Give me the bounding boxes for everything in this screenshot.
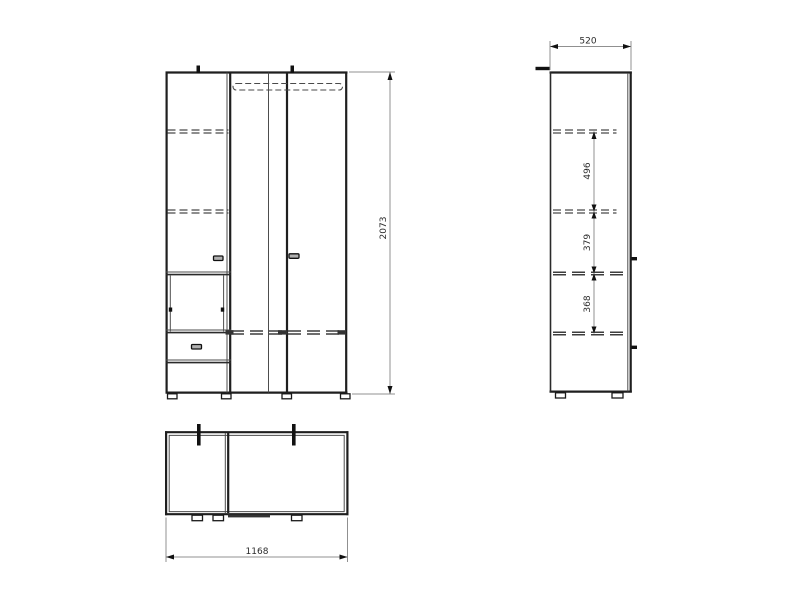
- drawer-handle: [192, 345, 202, 350]
- dimension-depth: 520: [550, 37, 631, 71]
- dim-label-height: 2073: [379, 217, 389, 240]
- dim-label-width: 1168: [246, 547, 269, 557]
- shelf-support-mark: [226, 330, 234, 334]
- foot-tab: [192, 515, 203, 521]
- foot: [612, 393, 623, 398]
- drawing-canvas: 2073 520: [0, 0, 800, 600]
- foot: [556, 393, 566, 398]
- wall-bracket-right: [292, 424, 296, 446]
- front-view: [166, 66, 351, 399]
- door-handle-side: [632, 257, 638, 260]
- foot: [222, 394, 232, 399]
- shelf-support-mark: [278, 330, 288, 334]
- right-door-handle: [289, 254, 299, 258]
- side-view: [536, 67, 638, 398]
- dim-label-gap-bottom: 368: [583, 295, 593, 312]
- dimension-arrow-right: [340, 555, 348, 560]
- dimension-arrow-up: [388, 72, 393, 80]
- wall-bracket-left: [197, 66, 201, 74]
- dim-label-depth: 520: [579, 37, 596, 47]
- dimension-arrow-down: [388, 386, 393, 394]
- foot: [168, 394, 178, 399]
- foot: [341, 394, 351, 399]
- wall-bracket-side: [536, 67, 551, 70]
- shelf-support-mark: [338, 330, 347, 334]
- technical-drawing-svg: 2073 520: [0, 0, 800, 600]
- foot-tab: [213, 515, 224, 521]
- dimension-arrow-right: [623, 44, 631, 49]
- shelf-pin: [169, 308, 172, 312]
- foot-tab: [292, 515, 303, 521]
- wall-bracket-right: [291, 66, 295, 74]
- dimension-shelf-spacing: 496 379 368: [583, 132, 597, 334]
- dimension-arrow-left: [166, 555, 174, 560]
- dim-label-gap-top: 496: [583, 162, 593, 179]
- foot: [282, 394, 292, 399]
- drawer-handle-side: [632, 346, 638, 349]
- dimension-width: 1168: [166, 518, 348, 563]
- wall-bracket-left: [197, 424, 201, 446]
- dimension-height: 2073: [349, 72, 395, 394]
- dim-label-gap-middle: 379: [583, 234, 593, 251]
- shelf-pin: [221, 308, 224, 312]
- plan-view: [165, 424, 349, 521]
- dimension-arrow-left: [550, 44, 558, 49]
- front-mirror-panel-strip: [228, 515, 270, 518]
- left-door-handle: [214, 256, 224, 261]
